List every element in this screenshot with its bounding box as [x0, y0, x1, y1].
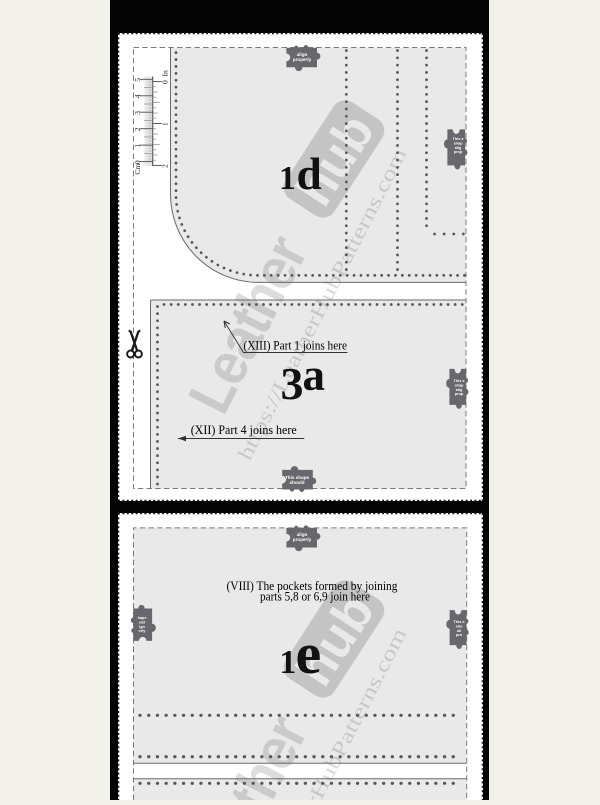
- svg-text:0: 0: [161, 80, 170, 84]
- svg-text:2: 2: [133, 127, 142, 131]
- svg-text:2: 2: [161, 164, 170, 168]
- svg-text:1: 1: [133, 144, 142, 148]
- svg-text:1: 1: [161, 122, 170, 126]
- svg-text:3: 3: [133, 111, 142, 115]
- svg-text:parts 5,8 or 6,9 join here: parts 5,8 or 6,9 join here: [260, 590, 370, 604]
- svg-text:Cm: Cm: [133, 164, 142, 175]
- svg-text:5: 5: [133, 78, 142, 82]
- svg-text:In: In: [161, 70, 170, 76]
- svg-text:0: 0: [133, 160, 142, 164]
- svg-text:4: 4: [133, 94, 142, 98]
- svg-text:(XII) Part 4 joins here: (XII) Part 4 joins here: [191, 423, 298, 437]
- svg-text:(XIII) Part 1 joins here: (XIII) Part 1 joins here: [244, 339, 348, 353]
